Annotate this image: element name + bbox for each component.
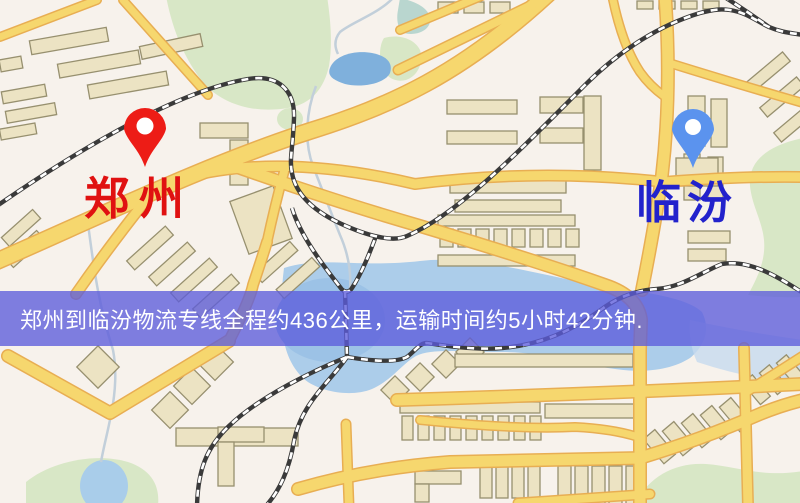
map-graphic[interactable]: [0, 0, 800, 503]
route-banner-text: 郑州到临汾物流专线全程约436公里，运输时间约5小时42分钟.: [0, 303, 643, 335]
map-container[interactable]: 郑州到临汾物流专线全程约436公里，运输时间约5小时42分钟. 郑州 临汾: [0, 0, 800, 503]
destination-label: 临汾: [636, 181, 738, 226]
route-banner: 郑州到临汾物流专线全程约436公里，运输时间约5小时42分钟.: [0, 291, 800, 346]
origin-label: 郑州: [84, 177, 194, 222]
origin-pin-icon[interactable]: [121, 103, 169, 169]
destination-pin-icon[interactable]: [669, 104, 717, 170]
